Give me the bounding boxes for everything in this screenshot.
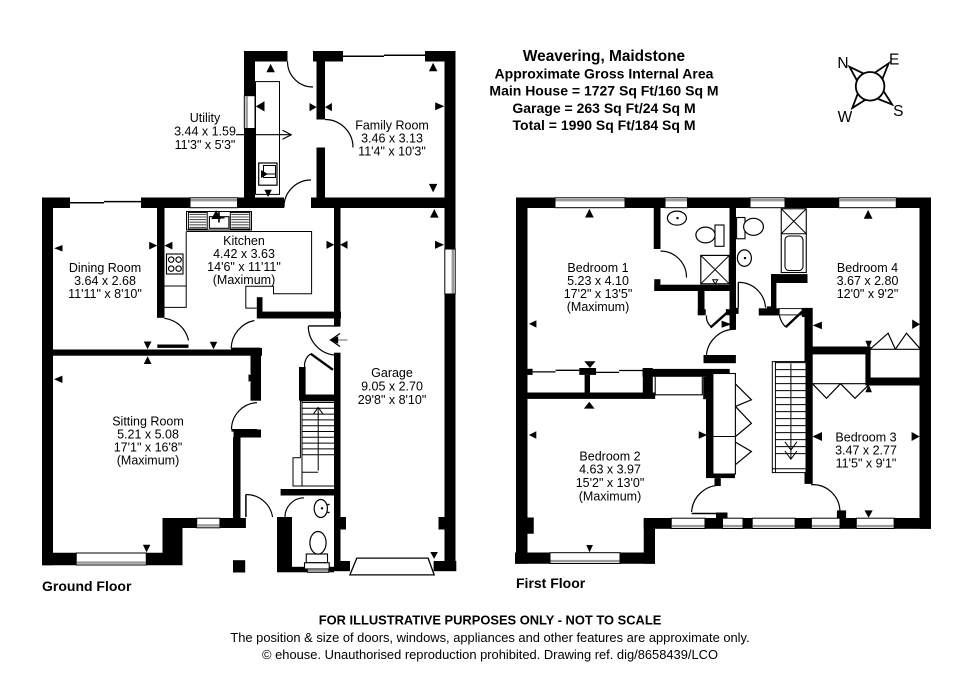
svg-text:Approximate Gross Internal Are: Approximate Gross Internal Area xyxy=(495,66,714,82)
svg-text:3.67 x 2.80: 3.67 x 2.80 xyxy=(837,274,899,288)
svg-text:17'1" x 16'8": 17'1" x 16'8" xyxy=(114,441,183,455)
svg-text:Garage: Garage xyxy=(371,366,413,380)
svg-text:Bedroom 2: Bedroom 2 xyxy=(579,450,640,464)
svg-text:5.23 x 4.10: 5.23 x 4.10 xyxy=(567,274,629,288)
svg-text:Sitting Room: Sitting Room xyxy=(112,415,184,429)
svg-text:E: E xyxy=(889,52,899,69)
svg-text:FOR ILLUSTRATIVE PURPOSES ONLY: FOR ILLUSTRATIVE PURPOSES ONLY - NOT TO … xyxy=(319,612,662,627)
svg-text:Bedroom 1: Bedroom 1 xyxy=(567,261,628,275)
svg-text:(Maximum): (Maximum) xyxy=(579,490,642,504)
svg-text:Garage = 263 Sq Ft/24 Sq M: Garage = 263 Sq Ft/24 Sq M xyxy=(512,100,695,116)
svg-text:Main House = 1727 Sq Ft/160 Sq: Main House = 1727 Sq Ft/160 Sq M xyxy=(489,83,718,99)
svg-text:15'2" x 13'0": 15'2" x 13'0" xyxy=(576,476,645,490)
svg-text:(Maximum): (Maximum) xyxy=(117,454,180,468)
svg-text:N: N xyxy=(837,55,848,72)
svg-text:5.21 x 5.08: 5.21 x 5.08 xyxy=(117,428,179,442)
svg-text:3.44 x 1.59: 3.44 x 1.59 xyxy=(174,125,236,139)
svg-text:Total = 1990 Sq Ft/184 Sq M: Total = 1990 Sq Ft/184 Sq M xyxy=(513,117,696,133)
svg-text:17'2" x 13'5": 17'2" x 13'5" xyxy=(564,287,633,301)
svg-text:11'5" x 9'1": 11'5" x 9'1" xyxy=(836,457,897,471)
svg-text:4.42 x 3.63: 4.42 x 3.63 xyxy=(213,247,275,261)
svg-text:11'11" x 8'10": 11'11" x 8'10" xyxy=(68,287,142,301)
svg-text:Bedroom 4: Bedroom 4 xyxy=(837,261,898,275)
svg-text:3.46 x 3.13: 3.46 x 3.13 xyxy=(361,132,423,146)
svg-text:12'0" x 9'2": 12'0" x 9'2" xyxy=(837,287,899,301)
svg-text:11'3" x 5'3": 11'3" x 5'3" xyxy=(175,138,236,152)
svg-text:Kitchen: Kitchen xyxy=(223,234,265,248)
svg-text:S: S xyxy=(893,103,903,120)
svg-text:Dining Room: Dining Room xyxy=(69,261,141,275)
svg-text:3.64 x 2.68: 3.64 x 2.68 xyxy=(74,274,136,288)
svg-text:4.63 x 3.97: 4.63 x 3.97 xyxy=(579,463,641,477)
svg-text:W: W xyxy=(838,109,853,126)
svg-text:First Floor: First Floor xyxy=(516,575,586,591)
svg-text:29'8" x 8'10": 29'8" x 8'10" xyxy=(358,393,427,407)
svg-text:3.47 x 2.77: 3.47 x 2.77 xyxy=(835,444,897,458)
svg-text:Bedroom 3: Bedroom 3 xyxy=(835,431,896,445)
svg-text:14'6" x 11'11": 14'6" x 11'11" xyxy=(207,260,281,274)
svg-text:11'4" x 10'3": 11'4" x 10'3" xyxy=(358,145,426,159)
svg-text:Weavering, Maidstone: Weavering, Maidstone xyxy=(523,48,686,65)
svg-text:9.05 x 2.70: 9.05 x 2.70 xyxy=(361,380,423,394)
svg-text:The position & size of doors,: The position & size of doors, windows, a… xyxy=(230,630,749,645)
svg-text:Ground Floor: Ground Floor xyxy=(42,578,132,594)
svg-text:Family Room: Family Room xyxy=(355,119,429,133)
svg-text:(Maximum): (Maximum) xyxy=(213,273,276,287)
svg-text:© ehouse. Unauthorised reprodu: © ehouse. Unauthorised reproduction proh… xyxy=(262,647,718,662)
svg-text:(Maximum): (Maximum) xyxy=(567,300,630,314)
svg-text:Utility: Utility xyxy=(190,111,221,125)
